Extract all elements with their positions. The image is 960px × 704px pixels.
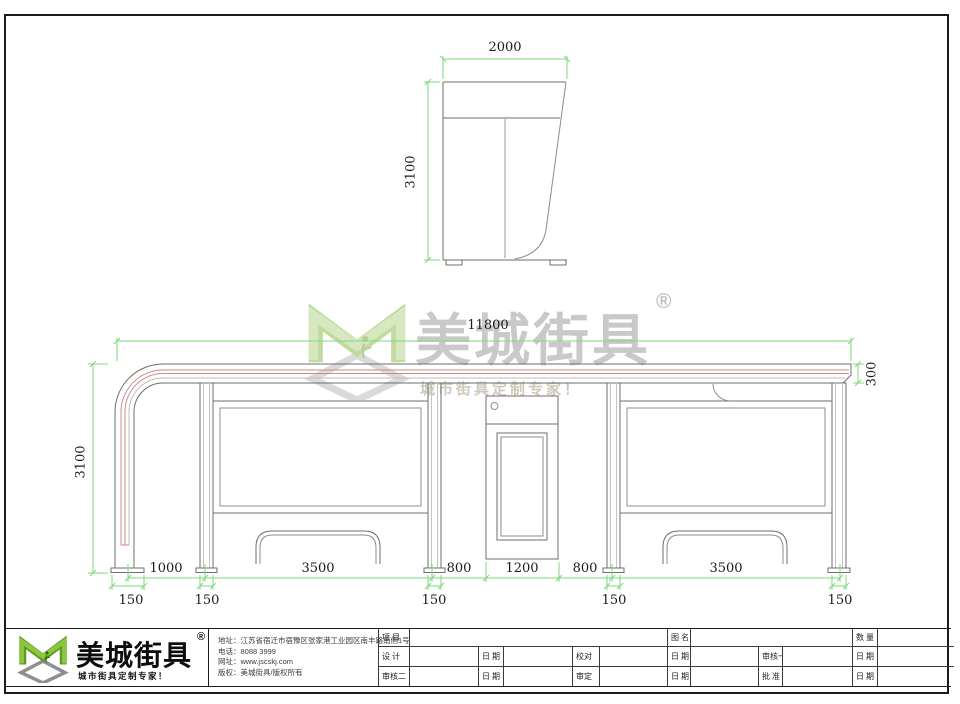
- titleblock-value-quantity: [878, 628, 954, 647]
- dim-post-2: 150: [195, 593, 220, 608]
- dim-total-length: 11800: [467, 318, 508, 333]
- right-ad-panel: [620, 384, 832, 513]
- titleblock-value-date-3: [878, 647, 954, 666]
- titleblock-label-design: 设 计: [379, 647, 410, 666]
- titleblock-table: 项 目 图 名 数 量 设 计 日 期 校对 日 期 审核一 日 期 审核二 日…: [378, 628, 953, 686]
- company-address: 地址：江苏省宿迁市宿豫区张家港工业园区南丰路南侧1号: [218, 636, 378, 647]
- titleblock-value-proofread: [600, 647, 668, 666]
- footer-brand-text: 美城街具: [76, 634, 192, 674]
- titleblock-value-review-2: [410, 667, 479, 686]
- footer-bottom-line: [5, 686, 951, 687]
- dim-post-3: 150: [422, 593, 447, 608]
- titleblock-label-drawing-name: 图 名: [668, 628, 691, 647]
- titleblock-value-project: [410, 628, 668, 647]
- titleblock-value-date-6: [878, 667, 954, 686]
- dim-post-4: 150: [602, 593, 627, 608]
- dim-side-height: 3100: [404, 155, 419, 188]
- titleblock-label-approve-review: 审定: [573, 667, 600, 686]
- company-copyright: 版权：美城街具/版权所有: [218, 668, 378, 679]
- titleblock-label-approve: 批 准: [759, 667, 783, 686]
- dim-post-5: 150: [828, 593, 853, 608]
- company-logo-block: 美城街具 ® 城市街具定制专家！: [14, 630, 210, 684]
- titleblock-label-date-2: 日 期: [668, 647, 691, 666]
- titleblock-label-proofread: 校对: [573, 647, 600, 666]
- footer-registered-mark: ®: [197, 631, 205, 643]
- title-strip: 美城街具 ® 城市街具定制专家！ 地址：江苏省宿迁市宿豫区张家港工业园区南丰路南…: [4, 628, 953, 686]
- left-ad-panel: [213, 401, 428, 513]
- company-info-block: 地址：江苏省宿迁市宿豫区张家港工业园区南丰路南侧1号 电话：8088 3999 …: [218, 636, 378, 678]
- dim-roof-height: 300: [865, 362, 880, 387]
- titleblock-label-date-3: 日 期: [853, 647, 878, 666]
- dim-bay-5: 800: [573, 561, 598, 576]
- cad-drawing: [0, 0, 960, 628]
- titleblock-value-approve: [783, 667, 853, 686]
- titleblock-value-approve-review: [600, 667, 668, 686]
- dim-side-width: 2000: [488, 40, 521, 55]
- titleblock-value-drawing-name: [691, 628, 853, 647]
- titleblock-value-review-1: [783, 647, 853, 666]
- dim-elevation-height: 3100: [74, 445, 89, 478]
- dim-bay-2: 3500: [301, 561, 334, 576]
- titleblock-label-review-1: 审核一: [759, 647, 783, 666]
- elevation-posts: [196, 383, 850, 573]
- drawing-sheet: 美城街具 ® 城市街具定制专家！: [0, 0, 960, 704]
- titleblock-value-date-5: [691, 667, 759, 686]
- company-website: 网址：www.jscskj.com: [218, 657, 378, 668]
- titleblock-value-design: [410, 647, 479, 666]
- titleblock-label-date-6: 日 期: [853, 667, 878, 686]
- titleblock-label-date-5: 日 期: [668, 667, 691, 686]
- titleblock-label-quantity: 数 量: [853, 628, 878, 647]
- brand-logo-icon: [14, 631, 72, 683]
- titleblock-value-date-2: [691, 647, 759, 666]
- footer-brand-slogan: 城市街具定制专家！: [78, 670, 168, 682]
- titleblock-label-date-1: 日 期: [479, 647, 504, 666]
- dim-bay-6: 3500: [709, 561, 742, 576]
- titleblock-label-project: 项 目: [379, 628, 410, 647]
- company-phone: 电话：8088 3999: [218, 647, 378, 658]
- elevation-roof: [111, 364, 851, 573]
- titleblock-label-date-4: 日 期: [479, 667, 504, 686]
- titleblock-value-date-1: [504, 647, 573, 666]
- dim-bay-1: 1000: [149, 561, 182, 576]
- side-view: [443, 82, 567, 265]
- dim-bay-3: 800: [447, 561, 472, 576]
- dim-post-1: 150: [119, 593, 144, 608]
- central-kiosk: [486, 396, 558, 559]
- titleblock-value-date-4: [504, 667, 573, 686]
- titleblock-label-review-2: 审核二: [379, 667, 410, 686]
- dim-bay-4: 1200: [505, 561, 538, 576]
